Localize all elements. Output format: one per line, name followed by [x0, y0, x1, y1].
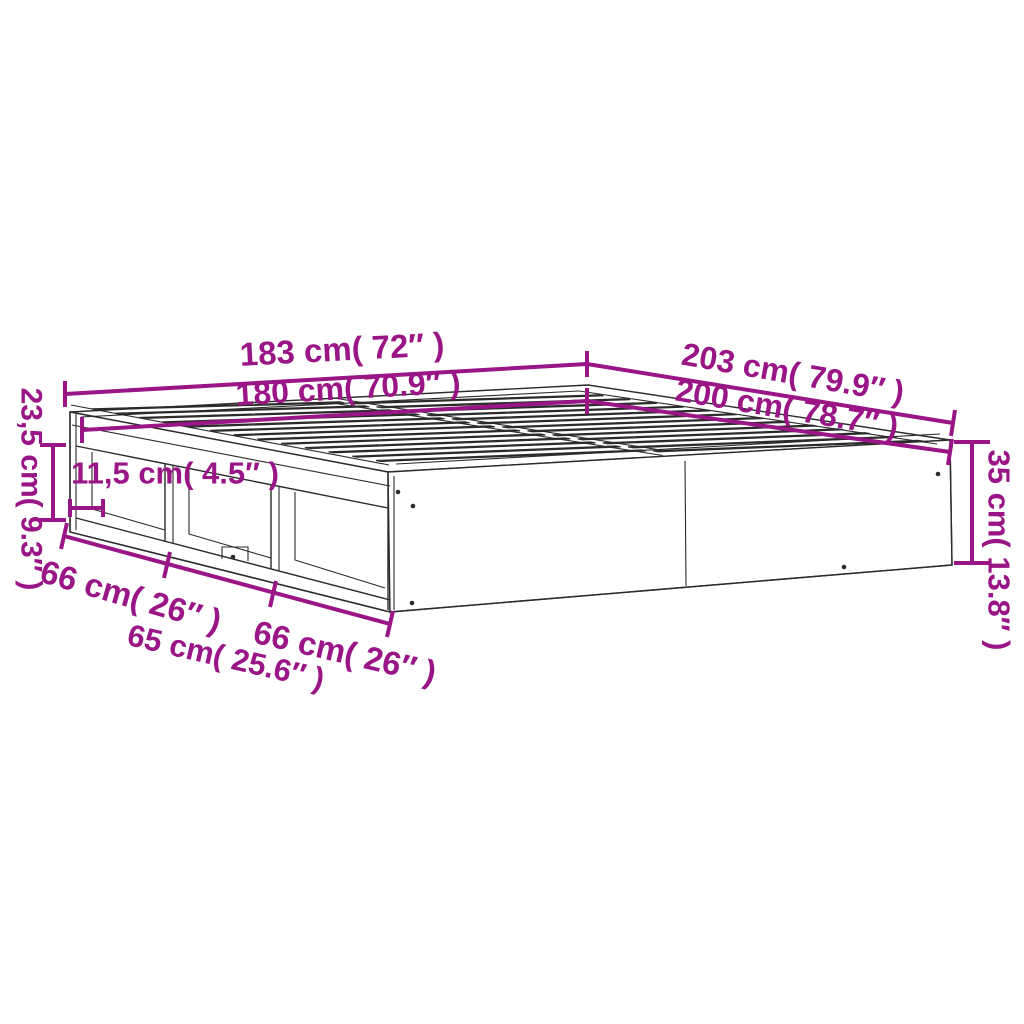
dim-label-shelf-depth: 11,5 cm( 4.5″ ) — [71, 456, 279, 491]
dim-label-frame-height: 35 cm( 13.8″ ) — [982, 450, 1017, 651]
dim-label-opening-height: 23,5 cm( 9.3″ ) — [15, 388, 48, 591]
dimension-diagram: 183 cm( 72″ ) 180 cm( 70.9″ ) 203 cm( 79… — [0, 0, 1024, 1024]
bed-frame-diagram: 183 cm( 72″ ) 180 cm( 70.9″ ) 203 cm( 79… — [0, 0, 1024, 1024]
